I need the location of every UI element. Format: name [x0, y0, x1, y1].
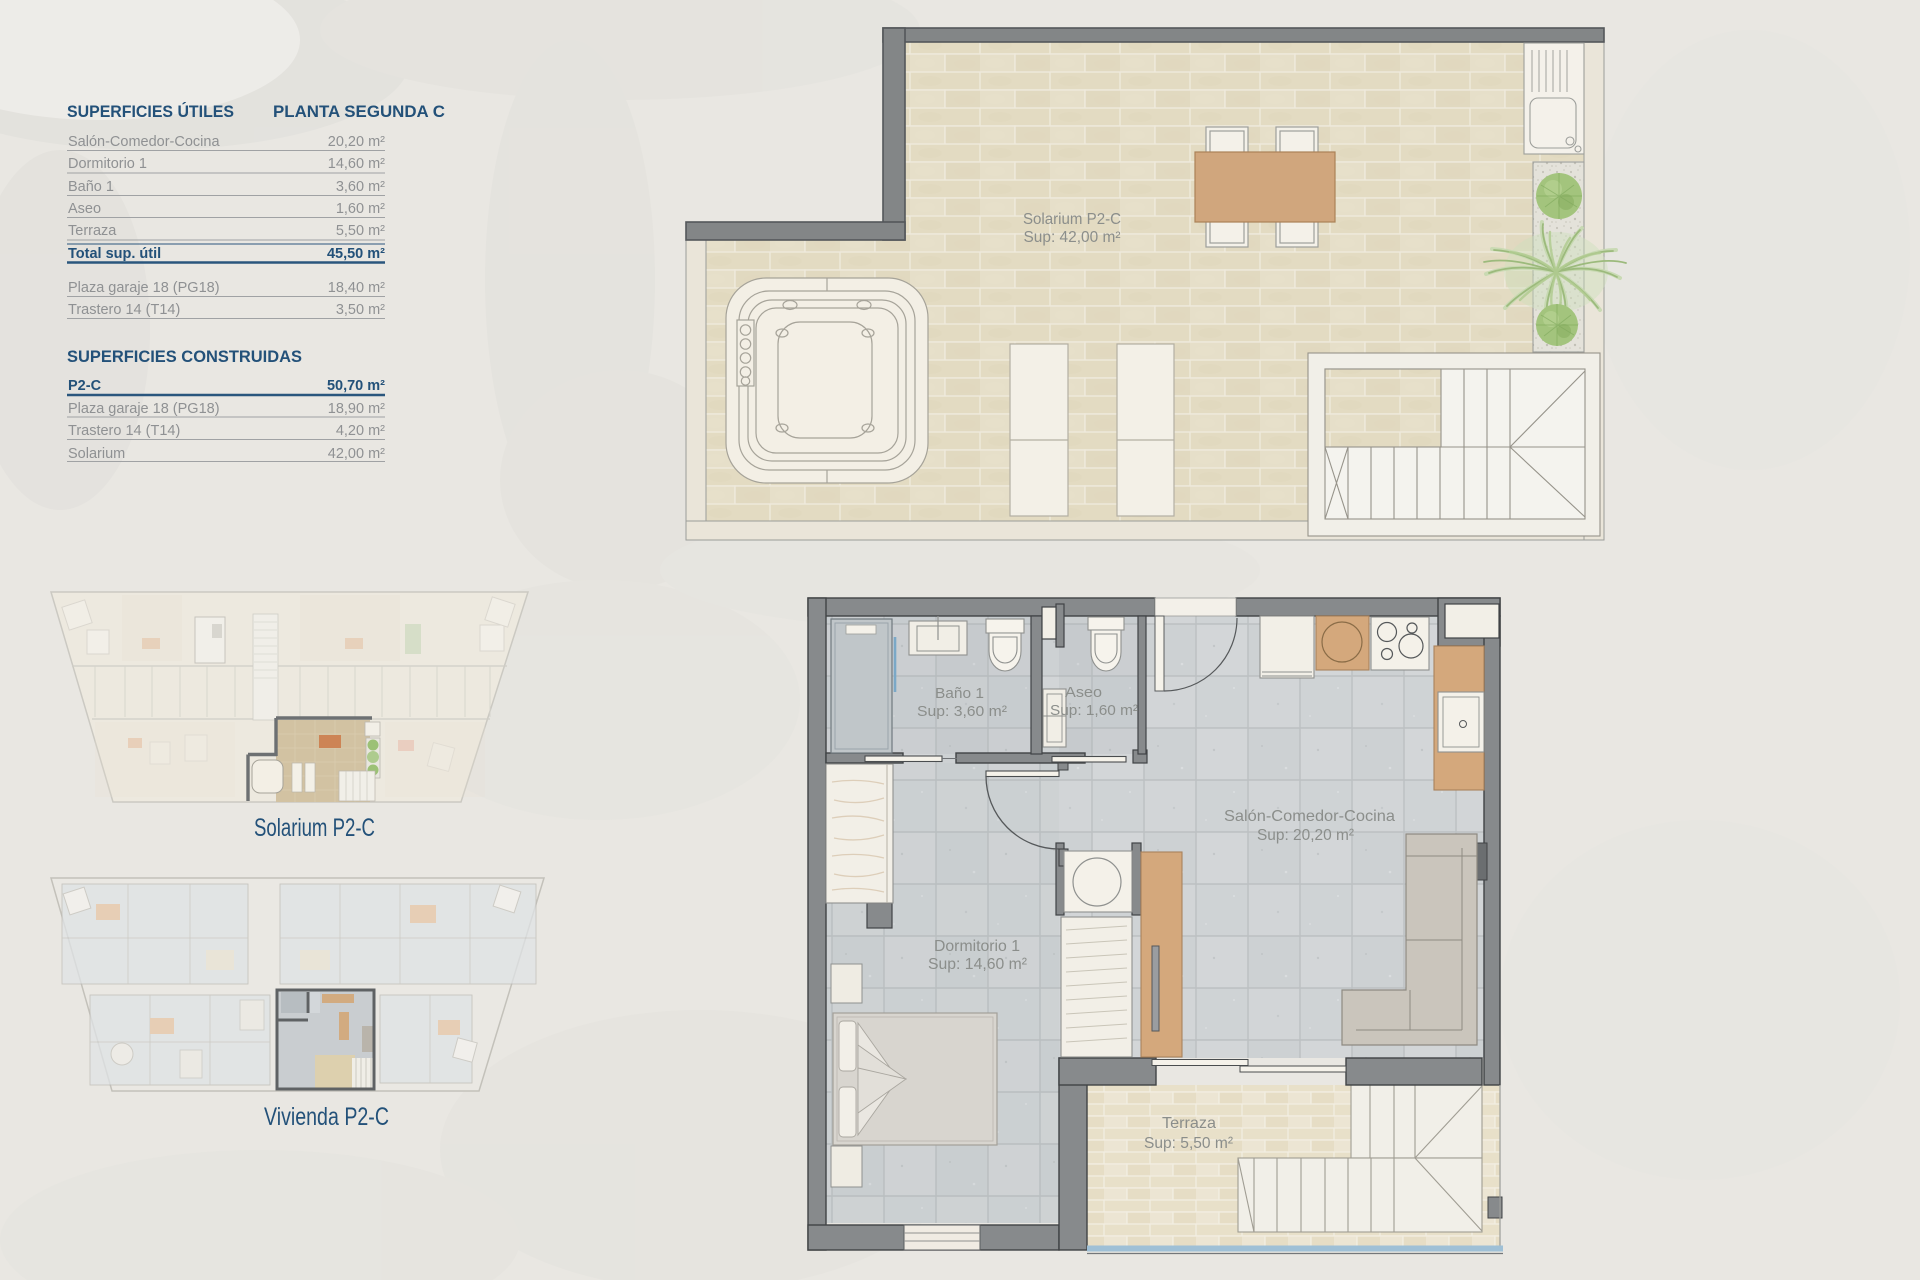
svg-text:Sup: 5,50 m²: Sup: 5,50 m² — [1144, 1135, 1234, 1152]
svg-text:45,50 m²: 45,50 m² — [327, 246, 385, 262]
svg-text:Sup: 3,60 m²: Sup: 3,60 m² — [917, 703, 1007, 720]
svg-text:18,90 m²: 18,90 m² — [328, 401, 385, 417]
svg-text:Dormitorio 1: Dormitorio 1 — [934, 938, 1020, 955]
svg-text:Solarium P2-C: Solarium P2-C — [1023, 211, 1121, 228]
svg-text:3,50 m²: 3,50 m² — [336, 302, 385, 318]
svg-text:18,40 m²: 18,40 m² — [328, 280, 385, 296]
svg-text:4,20 m²: 4,20 m² — [336, 423, 385, 439]
svg-text:20,20 m²: 20,20 m² — [328, 134, 385, 150]
svg-text:SUPERFICIES CONSTRUIDAS: SUPERFICIES CONSTRUIDAS — [67, 347, 302, 366]
svg-text:Trastero 14 (T14): Trastero 14 (T14) — [68, 423, 180, 439]
svg-text:Sup: 1,60 m²: Sup: 1,60 m² — [1050, 702, 1138, 719]
svg-text:Salón-Comedor-Cocina: Salón-Comedor-Cocina — [1224, 808, 1395, 825]
svg-text:PLANTA SEGUNDA C: PLANTA SEGUNDA C — [273, 102, 445, 121]
svg-text:14,60 m²: 14,60 m² — [328, 156, 385, 172]
svg-text:1,60 m²: 1,60 m² — [336, 201, 385, 217]
svg-text:5,50 m²: 5,50 m² — [336, 223, 385, 239]
svg-text:Vivienda P2-C: Vivienda P2-C — [264, 1103, 389, 1131]
svg-text:Aseo: Aseo — [1065, 684, 1102, 701]
svg-text:42,00 m²: 42,00 m² — [328, 446, 385, 462]
svg-text:Sup: 42,00 m²: Sup: 42,00 m² — [1024, 229, 1121, 246]
svg-text:3,60 m²: 3,60 m² — [336, 179, 385, 195]
svg-text:Trastero 14 (T14): Trastero 14 (T14) — [68, 302, 180, 318]
svg-text:Sup: 20,20 m²: Sup: 20,20 m² — [1257, 827, 1355, 844]
svg-text:P2-C: P2-C — [68, 378, 102, 394]
svg-text:Aseo: Aseo — [68, 201, 101, 217]
svg-text:Sup: 14,60 m²: Sup: 14,60 m² — [928, 956, 1028, 973]
svg-text:Plaza garaje 18 (PG18): Plaza garaje 18 (PG18) — [68, 280, 220, 296]
svg-text:Terraza: Terraza — [68, 223, 117, 239]
svg-text:Total sup. útil: Total sup. útil — [68, 246, 161, 262]
svg-text:Solarium P2-C: Solarium P2-C — [254, 814, 375, 842]
svg-text:Baño 1: Baño 1 — [68, 179, 114, 195]
svg-text:Salón-Comedor-Cocina: Salón-Comedor-Cocina — [68, 134, 220, 150]
svg-text:Dormitorio 1: Dormitorio 1 — [68, 156, 147, 172]
svg-text:SUPERFICIES ÚTILES: SUPERFICIES ÚTILES — [67, 102, 234, 121]
svg-text:Terraza: Terraza — [1162, 1115, 1216, 1132]
svg-text:Baño 1: Baño 1 — [935, 685, 984, 702]
svg-text:Solarium: Solarium — [68, 446, 125, 462]
svg-text:50,70 m²: 50,70 m² — [327, 378, 385, 394]
svg-text:Plaza garaje 18 (PG18): Plaza garaje 18 (PG18) — [68, 401, 220, 417]
